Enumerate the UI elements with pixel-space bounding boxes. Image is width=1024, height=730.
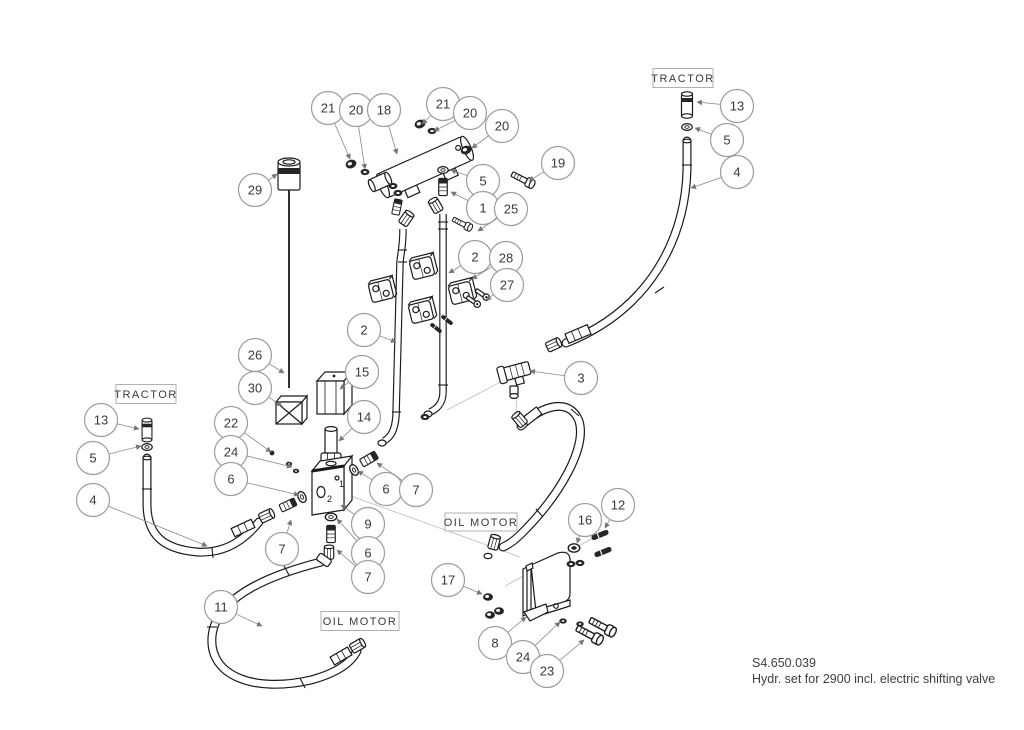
leader-line — [335, 123, 350, 159]
callout-23: 23 — [531, 640, 585, 688]
balloon-number: 3 — [577, 371, 584, 386]
cylinder-part-18 — [374, 135, 479, 207]
nut-part-21 — [413, 118, 426, 130]
callout-29: 29 — [239, 174, 278, 207]
destination-label-oil-motor: OIL MOTOR — [444, 513, 519, 531]
label-text: OIL MOTOR — [444, 517, 519, 529]
balloon-number: 26 — [248, 348, 262, 363]
balloon-number: 5 — [479, 174, 486, 189]
balloon-number: 24 — [516, 650, 530, 665]
balloon-number: 21 — [321, 101, 335, 116]
leader-line — [247, 456, 292, 467]
balloon-number: 5 — [723, 133, 730, 148]
tee-fitting-part-3 — [496, 359, 533, 398]
washer — [576, 560, 585, 566]
balloon-number: 1 — [479, 201, 486, 216]
callout-5: 5 — [695, 124, 744, 157]
fitting — [392, 199, 403, 216]
destination-label-tractor: TRACTOR — [114, 385, 177, 404]
callout-6: 6 — [215, 463, 300, 496]
balloon-number: 22 — [224, 416, 238, 431]
leader-line — [358, 471, 372, 480]
washer-part-5 — [142, 444, 152, 451]
leader-line — [691, 177, 721, 188]
callout-13: 13 — [85, 404, 140, 437]
balloon-number: 17 — [441, 573, 455, 588]
balloon-number: 24 — [224, 445, 238, 460]
steel-line-left-part-2 — [378, 229, 407, 446]
elbow-fitting — [427, 196, 443, 214]
callout-7: 7 — [266, 520, 299, 566]
clamp-half — [367, 276, 397, 303]
balloon-number: 28 — [499, 251, 513, 266]
balloon-number: 7 — [364, 570, 371, 585]
leader-line — [697, 102, 721, 104]
balloon-number: 8 — [491, 636, 498, 651]
drawing-description: Hydr. set for 2900 incl. electric shifti… — [752, 672, 995, 686]
callout-3: 3 — [530, 362, 598, 395]
leader-line — [236, 614, 262, 626]
balloon-number: 25 — [504, 202, 518, 217]
relay-part-30 — [276, 396, 307, 424]
callout-2: 2 — [449, 241, 492, 274]
pin-part-12 — [594, 546, 613, 558]
leader-line — [422, 115, 431, 124]
balloon-number: 5 — [89, 451, 96, 466]
balloon-number: 2 — [471, 250, 478, 265]
washer-part-6 — [296, 490, 308, 504]
leader-line — [577, 536, 580, 543]
leader-line — [529, 172, 544, 181]
balloon-number: 14 — [357, 410, 371, 425]
balloon-number: 6 — [364, 546, 371, 561]
callout-4: 4 — [77, 484, 208, 547]
leader-line — [244, 433, 271, 452]
parts-diagram-svg: 1 2 212018212020195125135429228272326301… — [0, 0, 1024, 730]
callout-9: 9 — [341, 505, 385, 541]
balloon-number: 4 — [89, 493, 96, 508]
leader-line — [463, 586, 482, 594]
leader-line — [287, 520, 291, 533]
destination-label-tractor: TRACTOR — [651, 69, 714, 88]
leader-line — [109, 446, 141, 454]
washer — [567, 561, 576, 567]
callout-4: 4 — [691, 156, 754, 189]
oring — [389, 183, 398, 189]
fitting-part-7 — [359, 451, 378, 467]
balloon-number: 15 — [355, 365, 369, 380]
callout-19: 19 — [529, 147, 575, 182]
balloon-number: 18 — [377, 103, 391, 118]
balloon-number: 7 — [278, 542, 285, 557]
washer-part-24 — [293, 469, 299, 473]
washer-part-16 — [568, 544, 580, 552]
washer-part-24 — [559, 618, 566, 623]
nut-part-21 — [344, 158, 357, 170]
balloon-number: 23 — [540, 664, 554, 679]
parts-diagram: 1 2 212018212020195125135429228272326301… — [0, 0, 1024, 730]
callout-17: 17 — [432, 564, 483, 597]
hose-nut — [258, 508, 276, 523]
leader-line — [695, 128, 712, 134]
fitting-part-1 — [439, 178, 448, 195]
balloon-number: 7 — [412, 483, 419, 498]
bolt-part-19 — [510, 170, 536, 190]
callout-20: 20 — [340, 94, 373, 170]
balloon-number: 13 — [730, 99, 744, 114]
balloon-number: 12 — [611, 498, 625, 513]
leader-line — [389, 126, 397, 154]
balloon-number: 6 — [382, 482, 389, 497]
coupling-part-13 — [682, 92, 693, 118]
leader-line — [339, 428, 352, 441]
leader-line — [379, 336, 396, 342]
callout-13: 13 — [697, 90, 754, 123]
balloon-number: 29 — [248, 183, 262, 198]
nut-part-17 — [485, 611, 495, 619]
label-text: OIL MOTOR — [323, 616, 398, 628]
destination-label-oil-motor: OIL MOTOR — [321, 612, 399, 631]
balloon-number: 11 — [214, 600, 228, 615]
fitting-part-7 — [327, 525, 336, 542]
valve-block: 1 2 — [312, 456, 352, 515]
balloon-number: 4 — [733, 165, 740, 180]
label-text: TRACTOR — [651, 73, 714, 85]
leader-line — [451, 192, 468, 201]
clamp-half — [408, 253, 438, 280]
callout-2: 2 — [348, 314, 397, 347]
leader-line — [508, 617, 526, 632]
washer-part-20 — [361, 169, 370, 175]
leader-line — [535, 622, 560, 646]
callout-27: 27 — [486, 269, 524, 302]
oring — [394, 190, 403, 196]
label-text: TRACTOR — [114, 389, 177, 401]
leader-line — [268, 174, 277, 180]
cap-part-29 — [278, 158, 300, 190]
drawing-code: S4.650.039 — [752, 656, 816, 670]
balloon-number: 20 — [495, 119, 509, 134]
balloon-number: 27 — [500, 278, 514, 293]
balloon-number: 6 — [227, 472, 234, 487]
fitting-part-7 — [279, 498, 297, 512]
balloon-number: 21 — [436, 97, 450, 112]
callout-5: 5 — [451, 165, 500, 198]
callout-12: 12 — [602, 489, 635, 529]
balloon-number: 9 — [364, 517, 371, 532]
mounting-bracket-part-8 — [523, 552, 570, 621]
callout-11: 11 — [205, 591, 263, 627]
balloon-number: 2 — [360, 323, 367, 338]
nut-part-17 — [483, 593, 493, 601]
leader-line — [269, 364, 284, 373]
callout-26: 26 — [239, 339, 285, 374]
block-port-mark-1: 1 — [339, 479, 344, 489]
balloon-number: 30 — [248, 381, 262, 396]
leader-line — [247, 483, 299, 495]
nut-part-17 — [494, 607, 504, 615]
leader-line — [449, 266, 461, 273]
hose-oil-motor-right — [484, 406, 580, 558]
leader-line — [605, 519, 610, 528]
balloon-number: 13 — [94, 413, 108, 428]
callout-30: 30 — [239, 372, 283, 407]
balloon-number: 20 — [349, 103, 363, 118]
washer-part-20 — [428, 128, 437, 134]
leader-line — [358, 126, 365, 169]
elbow-fitting — [398, 209, 415, 227]
leader-line — [560, 640, 584, 660]
washer-part-6 — [325, 513, 336, 520]
washer-part-5 — [682, 124, 692, 131]
block-port-mark-2: 2 — [327, 494, 332, 504]
leader-line — [434, 120, 455, 131]
clamp-half — [407, 297, 437, 324]
balloon-number: 16 — [578, 513, 592, 528]
leader-line — [117, 424, 139, 429]
seal-washer-part-5 — [438, 167, 448, 174]
leader-line — [530, 371, 565, 376]
coupling-part-13 — [142, 418, 152, 442]
balloon-number: 20 — [463, 106, 477, 121]
callout-18: 18 — [368, 94, 401, 155]
balloon-number: 19 — [551, 156, 565, 171]
leader-line — [472, 136, 489, 148]
callout-5: 5 — [77, 442, 142, 475]
